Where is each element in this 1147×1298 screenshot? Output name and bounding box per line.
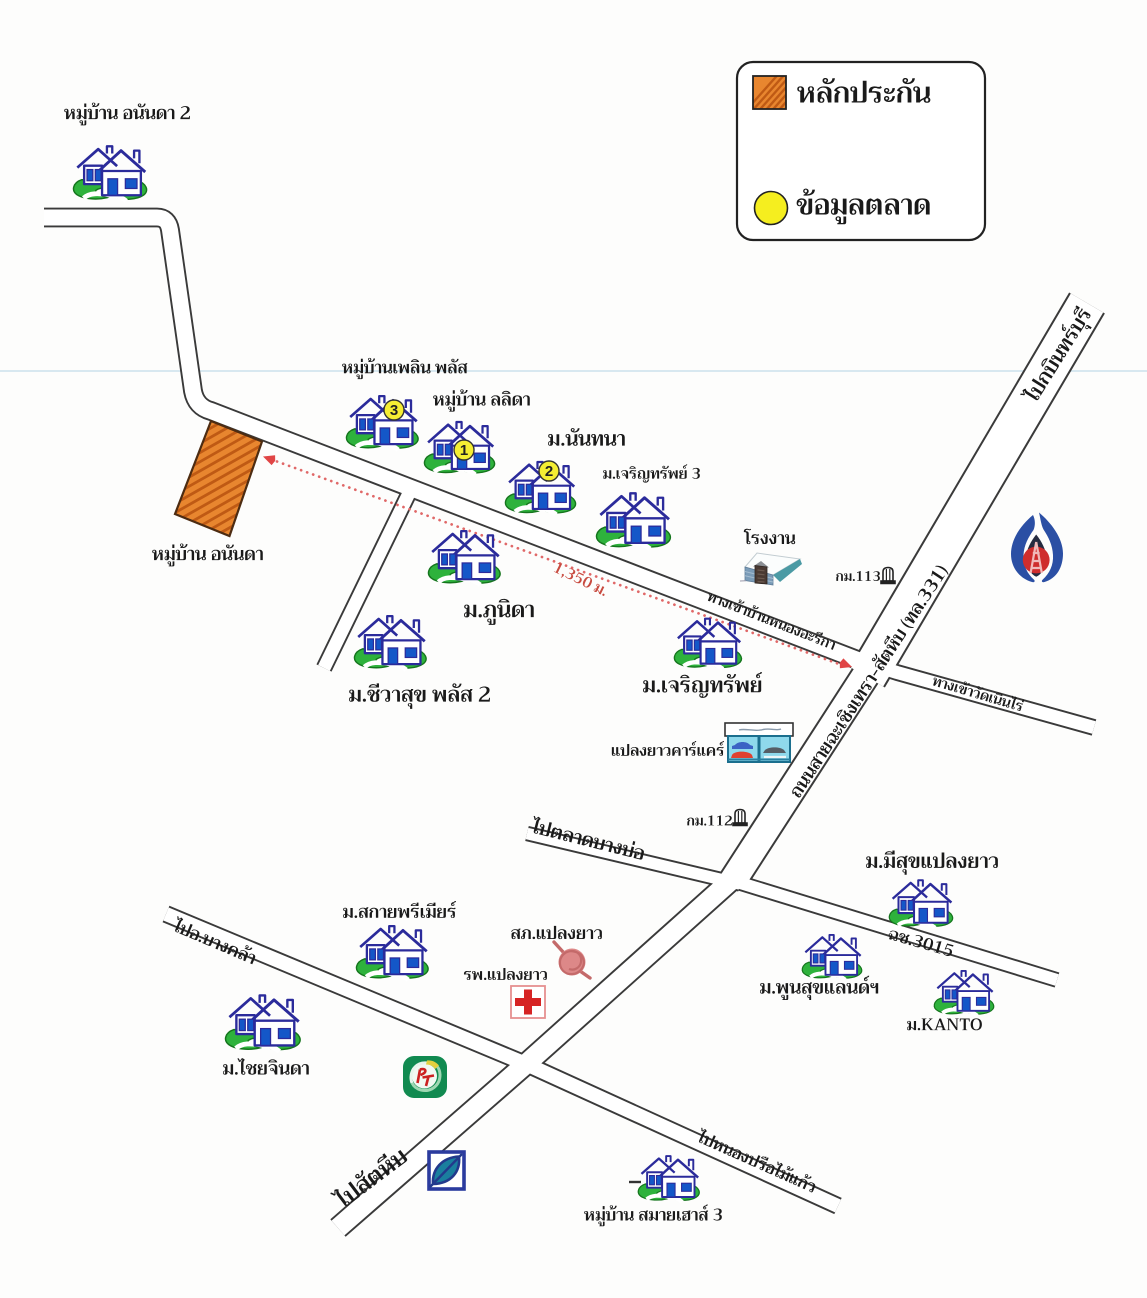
- svg-text:2: 2: [545, 463, 553, 480]
- svg-text:3: 3: [390, 402, 398, 419]
- svg-text:1: 1: [460, 442, 468, 459]
